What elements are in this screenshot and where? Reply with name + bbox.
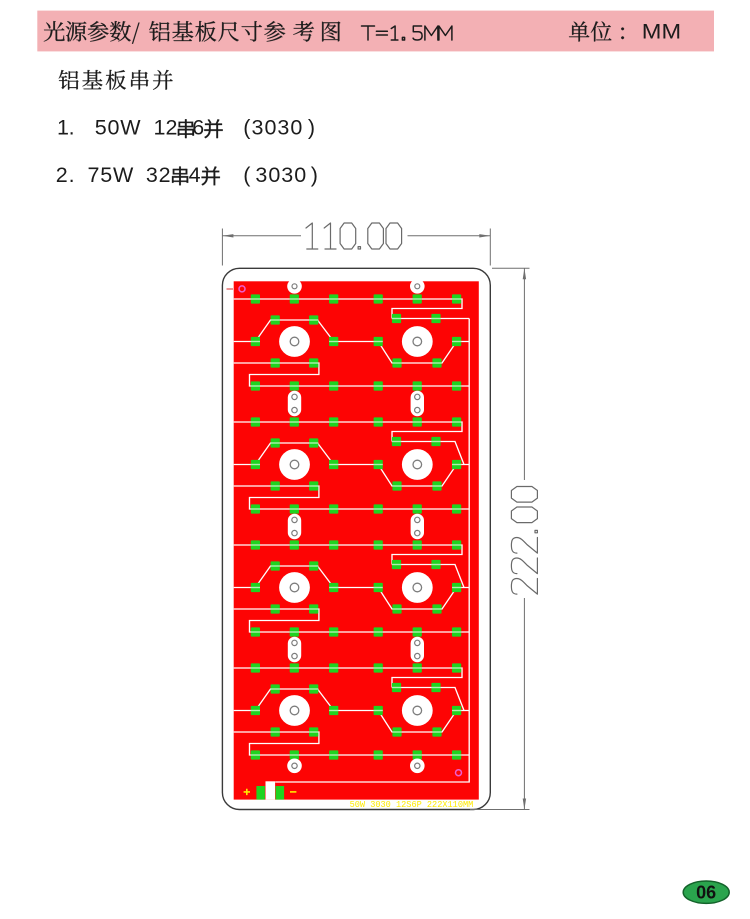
svg-text:1: 1 (57, 116, 69, 140)
svg-text:): ) (311, 163, 318, 187)
svg-text:32: 32 (146, 163, 172, 187)
svg-text:4: 4 (189, 163, 201, 187)
svg-text:2: 2 (56, 163, 68, 187)
svg-text:3030: 3030 (255, 163, 307, 187)
svg-text:3030: 3030 (252, 116, 304, 140)
svg-text:MM: MM (642, 19, 681, 43)
svg-text:(: ( (243, 116, 251, 140)
svg-text:6: 6 (192, 116, 204, 140)
svg-text:06: 06 (696, 882, 716, 902)
svg-text:50W: 50W (95, 116, 142, 140)
svg-text:.: . (69, 116, 75, 140)
svg-text:75W: 75W (88, 163, 135, 187)
svg-text:12: 12 (154, 116, 178, 140)
svg-text:(: ( (243, 163, 251, 187)
svg-text:50W 3030 12S6P 222X110MM: 50W 3030 12S6P 222X110MM (350, 800, 474, 810)
svg-text:.: . (69, 163, 75, 187)
svg-text:): ) (308, 116, 315, 140)
